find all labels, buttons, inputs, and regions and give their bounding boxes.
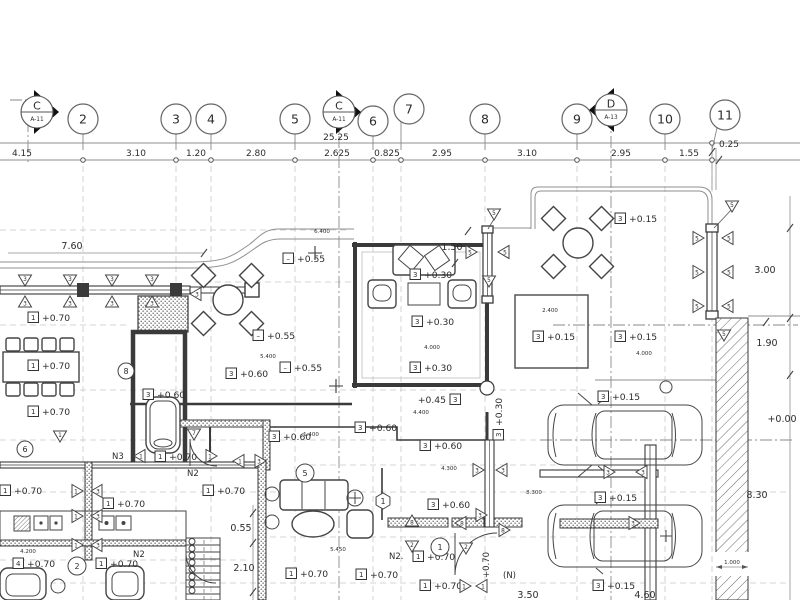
- svg-text:3: 3: [195, 292, 199, 298]
- svg-text:3: 3: [618, 215, 622, 223]
- svg-text:1: 1: [74, 514, 78, 520]
- round-table-terrace-left: [191, 263, 263, 335]
- level-label: 3+0.30: [410, 269, 452, 281]
- triangle-marker: 1: [72, 485, 83, 498]
- svg-text:8: 8: [501, 528, 505, 534]
- svg-text:3: 3: [423, 442, 427, 450]
- dimension: 3.00: [754, 265, 775, 276]
- triangle-marker: 5: [498, 246, 509, 259]
- triangle-marker: 3: [190, 288, 201, 301]
- svg-text:1: 1: [423, 582, 427, 590]
- triangle-marker: 1: [206, 450, 217, 463]
- floor-plan-canvas: 4.153.101.202.802.6250.8252.953.102.951.…: [0, 0, 800, 600]
- svg-text:1: 1: [74, 543, 78, 549]
- dimension: 0.55: [230, 523, 251, 534]
- grid-bubble: 7: [394, 94, 424, 150]
- svg-text:5: 5: [695, 236, 699, 242]
- svg-text:3: 3: [229, 370, 233, 378]
- svg-text:+0.30: +0.30: [494, 398, 505, 426]
- circle-tag: 8: [118, 363, 134, 379]
- triangle-marker: 5: [693, 232, 704, 245]
- svg-text:1: 1: [31, 362, 35, 370]
- level-label: 3+0.60: [428, 499, 470, 511]
- triangle-marker: 3: [19, 275, 32, 286]
- triangle-marker: 5: [722, 300, 733, 313]
- level-label: 3+0.60: [143, 389, 185, 401]
- top-dimension: 0.825: [374, 149, 400, 159]
- triangle-marker: 5: [466, 246, 477, 259]
- level-label: 3+0.15: [598, 391, 640, 403]
- svg-text:–: –: [286, 255, 290, 263]
- svg-text:3: 3: [618, 333, 622, 341]
- svg-text:3: 3: [68, 302, 72, 308]
- svg-text:3: 3: [257, 459, 261, 465]
- svg-text:3: 3: [631, 521, 635, 527]
- circle-tag: 6: [17, 441, 33, 457]
- dimension: 4.300: [441, 466, 457, 472]
- svg-text:5: 5: [730, 203, 734, 209]
- svg-text:5: 5: [503, 250, 507, 256]
- svg-text:+0.70: +0.70: [27, 559, 55, 570]
- svg-text:1: 1: [106, 500, 110, 508]
- dimension: 8.30: [746, 490, 767, 501]
- svg-text:+0.70: +0.70: [14, 486, 42, 497]
- svg-text:+0.55: +0.55: [267, 331, 295, 342]
- svg-text:–: –: [283, 364, 287, 372]
- level-label: 1+0.70: [28, 360, 70, 372]
- svg-text:8: 8: [460, 521, 464, 527]
- level-label: 3+0.15: [593, 580, 635, 592]
- svg-text:3: 3: [601, 393, 605, 401]
- svg-text:3: 3: [478, 513, 482, 519]
- dim-tick: [663, 158, 668, 163]
- svg-text:+0.15: +0.15: [607, 581, 635, 592]
- svg-text:5: 5: [302, 469, 307, 478]
- svg-text:A-13: A-13: [604, 115, 618, 121]
- svg-text:7: 7: [192, 431, 196, 437]
- dim-tick: [293, 158, 298, 163]
- level-label: 1+0.70: [103, 498, 145, 510]
- svg-text:+0.60: +0.60: [283, 432, 311, 443]
- svg-text:1: 1: [462, 584, 466, 590]
- svg-text:+0.15: +0.15: [547, 332, 575, 343]
- svg-text:8: 8: [123, 367, 128, 376]
- svg-text:3: 3: [413, 364, 417, 372]
- triangle-marker: 3: [64, 296, 77, 308]
- svg-text:1: 1: [437, 543, 442, 552]
- level-label: 1+0.70: [0, 485, 42, 497]
- svg-text:3: 3: [110, 302, 114, 308]
- svg-text:6: 6: [369, 114, 377, 129]
- level-label: 3+0.30: [493, 398, 505, 440]
- level-label: 3+0.15: [533, 331, 575, 343]
- svg-text:7: 7: [405, 102, 413, 117]
- svg-text:+0.60: +0.60: [369, 423, 397, 434]
- dim-tick: [483, 158, 488, 163]
- svg-text:+0.70: +0.70: [110, 559, 138, 570]
- top-dimension: 1.20: [186, 149, 206, 159]
- svg-text:+0.70: +0.70: [169, 452, 197, 463]
- svg-text:6: 6: [22, 445, 27, 454]
- svg-text:+0.15: +0.15: [629, 332, 657, 343]
- svg-text:3: 3: [172, 112, 180, 127]
- level-label: 3+0.60: [355, 422, 397, 434]
- dimension: 4.60: [634, 590, 655, 600]
- svg-text:3: 3: [536, 333, 540, 341]
- svg-text:1: 1: [208, 454, 212, 460]
- svg-text:1: 1: [3, 487, 7, 495]
- level-label: 1+0.70: [356, 569, 398, 581]
- svg-text:+0.70: +0.70: [117, 499, 145, 510]
- dimension: 1.90: [756, 338, 777, 349]
- svg-text:1: 1: [158, 453, 162, 461]
- svg-text:8: 8: [410, 521, 414, 527]
- text-tag: N2.: [389, 552, 403, 562]
- dimension: 8.300: [526, 490, 542, 496]
- svg-text:8: 8: [481, 112, 489, 127]
- top-dimension: 3.10: [126, 149, 146, 159]
- svg-text:5: 5: [695, 270, 699, 276]
- level-label: –+0.55: [280, 362, 322, 374]
- svg-text:5: 5: [487, 278, 491, 284]
- car-1: [548, 393, 702, 477]
- svg-text:3: 3: [146, 391, 150, 399]
- triangle-marker: 5: [693, 266, 704, 279]
- svg-text:5: 5: [492, 211, 496, 217]
- svg-text:3: 3: [358, 424, 362, 432]
- dim-tick: [710, 158, 715, 163]
- svg-text:3: 3: [596, 582, 600, 590]
- svg-text:3: 3: [598, 494, 602, 502]
- svg-text:3: 3: [431, 501, 435, 509]
- dimension: 4.400: [413, 410, 429, 416]
- triangle-marker: 3: [106, 296, 119, 308]
- top-dimension: 2.625: [324, 149, 350, 159]
- svg-text:5: 5: [727, 270, 731, 276]
- triangle-marker: 7: [188, 429, 201, 440]
- svg-text:2: 2: [74, 562, 79, 571]
- level-label: 1+0.70: [286, 568, 328, 580]
- dimension: 4.200: [20, 549, 36, 555]
- triangle-marker: 5: [693, 300, 704, 313]
- dimension: 6.400: [314, 229, 330, 235]
- triangle-marker: 1: [134, 450, 145, 463]
- svg-text:3: 3: [23, 277, 27, 283]
- svg-text:3: 3: [501, 468, 505, 474]
- level-label: 1+0.70: [203, 485, 245, 497]
- svg-text:3: 3: [150, 277, 154, 283]
- section-marker: CA-11: [21, 90, 59, 134]
- top-dimension: 1.55: [679, 149, 699, 159]
- top-dimension: 2.95: [432, 149, 452, 159]
- svg-text:+0.70: +0.70: [42, 407, 70, 418]
- svg-text:+0.70: +0.70: [42, 313, 70, 324]
- top-dimension: 2.80: [246, 149, 266, 159]
- text-tag: +0.70: [482, 552, 492, 578]
- svg-text:C: C: [33, 100, 41, 113]
- level-label: 3+0.60: [269, 431, 311, 443]
- svg-text:1: 1: [289, 570, 293, 578]
- dimension: +0.00: [767, 414, 796, 425]
- top-dimension: 0.25: [719, 140, 739, 150]
- grid-bubbles: 234567891011CA-11CA-11DA-13: [21, 88, 740, 150]
- svg-text:1: 1: [58, 433, 62, 439]
- dimension: 3.50: [517, 590, 538, 600]
- svg-text:3: 3: [96, 543, 100, 549]
- triangle-marker: 3: [473, 464, 484, 477]
- dimension: 1.000: [724, 560, 740, 566]
- level-label: 3+0.15: [615, 331, 657, 343]
- svg-text:+0.70: +0.70: [217, 486, 245, 497]
- dim-tick: [81, 158, 86, 163]
- triangle-marker: 5: [722, 266, 733, 279]
- dim-tick: [174, 158, 179, 163]
- svg-text:5: 5: [722, 332, 726, 338]
- svg-text:+0.60: +0.60: [434, 441, 462, 452]
- svg-text:+0.70: +0.70: [370, 570, 398, 581]
- section-marker: CA-11: [323, 90, 361, 134]
- svg-text:3: 3: [495, 433, 503, 437]
- level-label: 3+0.60: [420, 440, 462, 452]
- dimension: 4.000: [636, 351, 652, 357]
- svg-text:+0.70: +0.70: [434, 581, 462, 592]
- svg-text:+0.45: +0.45: [418, 395, 446, 406]
- svg-text:1: 1: [359, 571, 363, 579]
- circle-tag: 5: [296, 464, 314, 482]
- svg-text:3: 3: [641, 470, 645, 476]
- svg-text:3: 3: [23, 302, 27, 308]
- triangle-marker: 3: [91, 485, 102, 498]
- svg-text:A-11: A-11: [30, 117, 44, 123]
- level-label: 3+0.15: [615, 213, 657, 225]
- triangle-marker: 3: [496, 464, 507, 477]
- svg-text:10: 10: [657, 112, 673, 127]
- svg-text:3: 3: [272, 433, 276, 441]
- triangle-marker: 1: [476, 580, 487, 593]
- triangle-marker: 3: [146, 275, 159, 286]
- dimension: 5.450: [330, 547, 346, 553]
- top-dimension: 3.10: [517, 149, 537, 159]
- level-label: 3+0.45: [418, 394, 461, 406]
- svg-text:3: 3: [453, 396, 457, 404]
- svg-text:5: 5: [727, 236, 731, 242]
- level-label: 3+0.30: [410, 362, 452, 374]
- svg-text:3: 3: [415, 318, 419, 326]
- slash-tick: [465, 227, 471, 235]
- level-label: 3+0.30: [412, 316, 454, 328]
- svg-text:+0.60: +0.60: [240, 369, 268, 380]
- svg-text:3: 3: [413, 271, 417, 279]
- svg-text:+0.30: +0.30: [424, 363, 452, 374]
- svg-text:1: 1: [481, 584, 485, 590]
- round-table-terrace-right: [541, 206, 613, 278]
- level-label: –+0.55: [253, 330, 295, 342]
- svg-text:3: 3: [96, 514, 100, 520]
- svg-text:1: 1: [31, 408, 35, 416]
- svg-text:1: 1: [206, 487, 210, 495]
- level-label: 3+0.15: [595, 492, 637, 504]
- dimension: 2.10: [233, 563, 254, 574]
- dim-tick: [575, 158, 580, 163]
- living-room-set: [368, 245, 476, 308]
- level-label: 1+0.70: [96, 558, 138, 570]
- svg-text:2: 2: [79, 112, 87, 127]
- text-tag: (N): [503, 571, 516, 581]
- dimension: 2.400: [542, 308, 558, 314]
- svg-text:5: 5: [695, 304, 699, 310]
- svg-text:+0.55: +0.55: [294, 363, 322, 374]
- svg-text:4: 4: [207, 112, 215, 127]
- svg-text:5: 5: [468, 250, 472, 256]
- circle-tag: 1: [431, 538, 449, 556]
- svg-text:11: 11: [717, 108, 733, 123]
- dim-tick: [209, 158, 214, 163]
- svg-text:4: 4: [16, 560, 21, 568]
- top-dimension: 4.15: [12, 149, 32, 159]
- svg-text:1: 1: [380, 497, 385, 506]
- svg-text:1: 1: [74, 489, 78, 495]
- svg-text:3: 3: [110, 277, 114, 283]
- dimension: 7.60: [61, 241, 82, 252]
- triangle-marker: 5: [722, 232, 733, 245]
- svg-text:+0.70: +0.70: [42, 361, 70, 372]
- svg-text:+0.60: +0.60: [157, 390, 185, 401]
- svg-text:3: 3: [475, 468, 479, 474]
- svg-text:2: 2: [410, 543, 414, 549]
- dimension: 1.50: [441, 242, 462, 253]
- svg-text:1: 1: [238, 459, 242, 465]
- level-label: 1+0.70: [28, 406, 70, 418]
- svg-text:+0.15: +0.15: [609, 493, 637, 504]
- floor-plan-page: 4.153.101.202.802.6250.8252.953.102.951.…: [0, 0, 800, 600]
- svg-text:+0.15: +0.15: [612, 392, 640, 403]
- level-label: –+0.55: [283, 253, 325, 265]
- svg-text:1: 1: [31, 314, 35, 322]
- triangle-marker: 1: [460, 580, 471, 593]
- text-tag: N2: [133, 550, 145, 560]
- dimension: 4.000: [424, 345, 440, 351]
- svg-text:3: 3: [96, 489, 100, 495]
- triangle-marker: 3: [19, 296, 32, 308]
- svg-text:1: 1: [139, 454, 143, 460]
- svg-text:3: 3: [68, 277, 72, 283]
- marker-leader: [714, 210, 731, 228]
- svg-text:+0.30: +0.30: [426, 317, 454, 328]
- section-marker: DA-13: [589, 88, 627, 132]
- circle-tag: 2: [68, 557, 86, 575]
- level-label: 3+0.60: [226, 368, 268, 380]
- triangle-marker: 2: [406, 541, 419, 552]
- svg-text:+0.70: +0.70: [300, 569, 328, 580]
- lounge-set: [265, 480, 373, 538]
- level-label: 1+0.70: [155, 451, 197, 463]
- text-tag: N2: [187, 469, 199, 479]
- level-label: 4+0.70: [13, 558, 55, 570]
- svg-text:9: 9: [573, 112, 581, 127]
- svg-text:+0.30: +0.30: [424, 270, 452, 281]
- dimension: 5.400: [260, 354, 276, 360]
- svg-text:3: 3: [606, 470, 610, 476]
- triangle-marker: 5: [488, 209, 501, 220]
- hatched-wall: [714, 318, 750, 600]
- car-2: [548, 498, 702, 574]
- svg-text:D: D: [607, 98, 615, 111]
- svg-text:+0.55: +0.55: [297, 254, 325, 265]
- total-dimension: 25.25: [323, 133, 349, 143]
- level-label: 1+0.70: [420, 580, 462, 592]
- svg-text:+0.15: +0.15: [629, 214, 657, 225]
- svg-text:5: 5: [291, 112, 299, 127]
- triangle-marker: 5: [726, 201, 739, 212]
- svg-text:A-11: A-11: [332, 117, 346, 123]
- svg-text:–: –: [256, 332, 260, 340]
- svg-text:1: 1: [416, 553, 420, 561]
- svg-text:C: C: [335, 100, 343, 113]
- triangle-marker: 3: [64, 275, 77, 286]
- svg-text:1: 1: [99, 560, 103, 568]
- hexagon-tag: 1: [376, 493, 390, 509]
- top-dimension: 2.95: [611, 149, 631, 159]
- text-tag: N3: [112, 452, 124, 462]
- svg-text:3: 3: [150, 302, 154, 308]
- triangle-marker: 3: [106, 275, 119, 286]
- svg-text:+0.60: +0.60: [442, 500, 470, 511]
- svg-text:5: 5: [727, 304, 731, 310]
- svg-text:2: 2: [464, 545, 468, 551]
- level-label: 1+0.70: [28, 312, 70, 324]
- bathtub: [146, 397, 180, 453]
